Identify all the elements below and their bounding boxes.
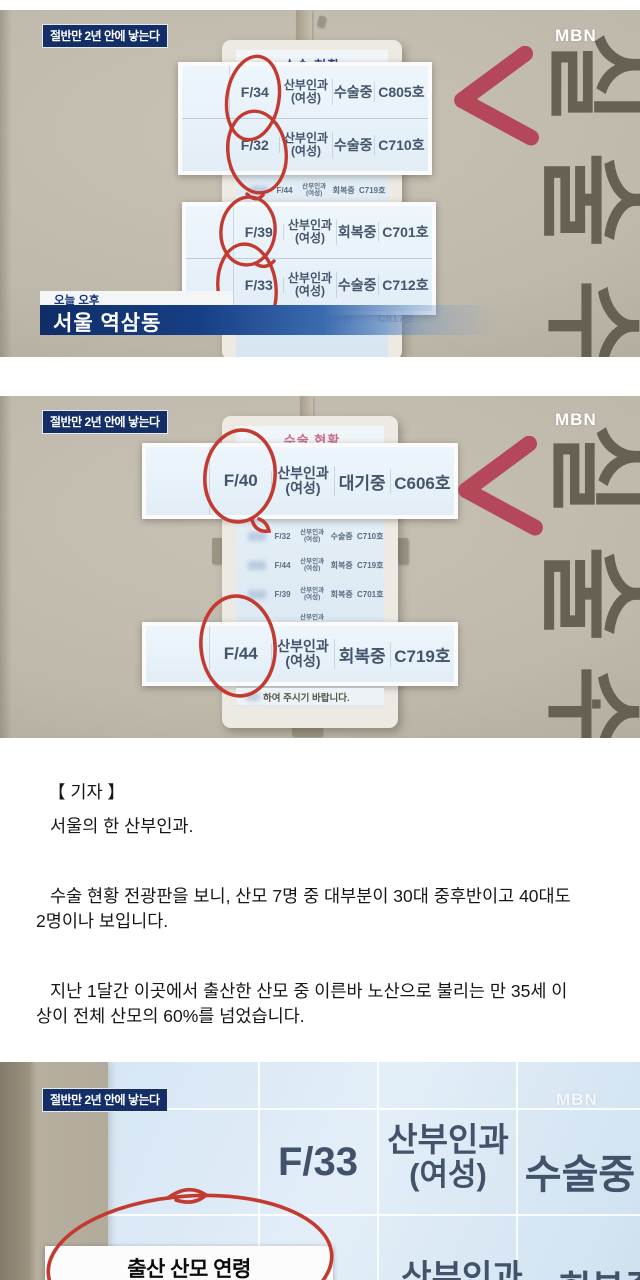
room-cell: C719호: [391, 642, 454, 667]
table-row-small: F/32 산부인과(여성) 수술중 C710호: [248, 524, 386, 548]
age-cell: F/40: [210, 471, 272, 491]
table-row: F/39 산부인과(여성) 회복중 C701호: [186, 206, 432, 258]
status-cell: 회복중: [335, 642, 391, 667]
mount-screw: [317, 15, 326, 27]
department-line1: 산부인과: [295, 529, 329, 536]
monitor-mount-pole: [296, 10, 312, 44]
table-row: F/34 산부인과(여성) 수술중 C805호: [182, 66, 428, 118]
caption-location: 서울 역삼동: [40, 305, 498, 335]
department-line2: (여성): [280, 92, 331, 105]
news-frame-3: F/33 산부인과 (여성) 수술중 산부인과 회복중 출산 산모 연령 (자료…: [0, 1062, 640, 1280]
department-cell: 산부인과 (여성): [382, 1122, 514, 1191]
article-paragraph: 수술 현황 전광판을 보니, 산모 7명 중 대부분이 30대 중후반이고 40…: [36, 884, 582, 935]
department-line2: (여성): [272, 654, 333, 669]
status-cell: 회복중: [337, 222, 379, 242]
department-line2: (여성): [295, 594, 329, 601]
status-cell: 회복중: [329, 589, 355, 600]
department-line1: 산부인과: [297, 183, 331, 190]
department-cell: 산부인과(여성): [284, 219, 336, 245]
blur-redaction: [248, 561, 266, 570]
status-cell: 수술중: [329, 531, 355, 542]
department-cell: 산부인과(여성): [272, 466, 334, 496]
status-cell: 수술중: [337, 275, 379, 295]
department-line2: (여성): [284, 285, 335, 298]
headline-badge: 절반만 2년 안에 낳는다: [42, 1088, 168, 1112]
department-line2: (여성): [297, 190, 331, 197]
department-cell: 산부인과(여성): [297, 183, 331, 197]
table-row-small: F/39 산부인과(여성) 회복중 C701호: [248, 582, 386, 606]
age-cell: F/44: [272, 186, 298, 195]
signage-dot: ·: [588, 674, 608, 734]
department-line2: (여성): [295, 565, 329, 572]
department-line2: (여성): [272, 481, 333, 496]
department-line2: (여성): [295, 536, 329, 543]
redacted-cell: [146, 626, 210, 682]
department-line2: (여성): [284, 232, 335, 245]
blur-redaction: [248, 590, 266, 599]
callout-box-bottom: F/44 산부인과(여성) 회복중 C719호: [142, 622, 458, 686]
department-cell: 산부인과(여성): [295, 529, 329, 543]
department-cell: 산부인과(여성): [280, 79, 332, 105]
blur-redaction: [250, 186, 268, 195]
department-cell: 산부인과: [300, 611, 324, 621]
room-cell: C701호: [379, 222, 432, 242]
signage-char: 술: [536, 546, 640, 642]
table-row: F/32 산부인과(여성) 수술중 C710호: [182, 118, 428, 171]
room-cell: C712호: [379, 275, 432, 295]
callout-box-top: F/40 산부인과(여성) 대기중 C606호: [142, 443, 458, 519]
age-cell: F/32: [270, 532, 296, 541]
age-cell: F/32: [230, 137, 280, 153]
status-cell: 회복중: [331, 185, 357, 196]
department-cell: 산부인과(여성): [295, 558, 329, 572]
caption-time: 오늘 오후: [40, 291, 233, 306]
redacted-cell: [182, 119, 230, 171]
redacted-cell: [182, 66, 230, 118]
article-paragraph: 서울의 한 산부인과.: [36, 814, 582, 839]
signage-char: 술: [536, 152, 640, 248]
redacted-cell: [146, 447, 210, 515]
department-line2: (여성): [280, 145, 331, 158]
mbn-logo: MBN: [556, 1090, 598, 1110]
age-cell: F/44: [270, 561, 296, 570]
room-cell: C719호: [356, 185, 388, 196]
news-frame-1: 수술 현황 F/44 산부인과(여성) 회복중 C719호 수술중 C817호 …: [0, 10, 640, 357]
department-cell: 산부인과(여성): [280, 132, 332, 158]
signage-char: 실: [544, 32, 640, 124]
status-cell-partial: 회복중: [548, 1260, 640, 1280]
age-cell: F/44: [210, 644, 272, 664]
post-page: 수술 현황 F/44 산부인과(여성) 회복중 C719호 수술중 C817호 …: [0, 0, 640, 1280]
wall-corner-shade: [0, 10, 12, 357]
headline-badge: 절반만 2년 안에 낳는다: [42, 24, 168, 48]
callout-box-top: F/34 산부인과(여성) 수술중 C805호 F/32 산부인과(여성) 수술…: [178, 62, 432, 175]
table-row-partial: 산부인과: [300, 610, 340, 622]
red-chevron-icon: [448, 46, 540, 148]
signage-char: 실: [546, 424, 640, 516]
room-cell: C710호: [354, 531, 386, 542]
room-cell: C719호: [354, 560, 386, 571]
room-cell: C805호: [375, 82, 428, 102]
department-line1: 산부인과: [272, 639, 333, 654]
red-chevron-icon: [452, 436, 544, 538]
blur-redaction: [248, 532, 266, 541]
age-cell: F/39: [234, 224, 284, 240]
department-line2: (여성): [382, 1158, 514, 1191]
article-body: 【 기자 】 서울의 한 산부인과. 수술 현황 전광판을 보니, 산모 7명 …: [0, 738, 640, 1062]
article-paragraph: 지난 1달간 이곳에서 출산한 산모 중 이른바 노산으로 불리는 만 35세 …: [36, 979, 582, 1030]
footer-note: 하여 주시기 바랍니다.: [236, 688, 384, 705]
grid-line: [108, 1214, 640, 1216]
department-line1: 산부인과: [295, 558, 329, 565]
table-row: F/44 산부인과(여성) 회복중 C719호: [146, 626, 454, 682]
signage-char: 수: [542, 280, 640, 357]
table-row-small: F/44 산부인과(여성) 회복중 C719호: [250, 178, 388, 202]
department-line1: 산부인과: [382, 1122, 514, 1158]
blur-redaction: [246, 693, 260, 701]
redacted-cell: [186, 206, 234, 258]
footer-note-text: 하여 주시기 바랍니다.: [263, 690, 350, 704]
age-cell: F/33: [262, 1140, 374, 1185]
department-cell: 산부인과(여성): [272, 639, 334, 669]
age-cell: F/39: [270, 590, 296, 599]
department-cell: 산부인과(여성): [284, 272, 336, 298]
room-cell: C710호: [375, 135, 428, 155]
age-cell: F/34: [230, 84, 280, 100]
room-cell: C701호: [354, 589, 386, 600]
department-cell: 산부인과(여성): [295, 587, 329, 601]
wall-corner-shade: [0, 396, 12, 738]
status-cell: 회복중: [329, 560, 355, 571]
info-box-title: 출산 산모 연령: [45, 1253, 333, 1280]
news-frame-2: 수술 현황 F/32 산부인과(여성) 수술중 C710호 F/44 산부인과(…: [0, 396, 640, 738]
headline-badge: 절반만 2년 안에 낳는다: [42, 410, 168, 434]
status-cell: 수술중: [518, 1142, 640, 1200]
grid-line: [377, 1062, 379, 1280]
department-cell-partial: 산부인과: [392, 1250, 532, 1280]
table-row: F/40 산부인과(여성) 대기중 C606호: [146, 447, 454, 515]
department-line1: 산부인과: [295, 587, 329, 594]
table-row-small: F/44 산부인과(여성) 회복중 C719호: [248, 553, 386, 577]
age-cell: F/33: [234, 277, 284, 293]
status-cell: 수술중: [333, 135, 375, 155]
info-box: 출산 산모 연령 (자료 : 강남차병원 산부인과 기간 : 7월 22일~8월…: [45, 1246, 333, 1280]
department-line1: 산부인과: [272, 466, 333, 481]
reporter-label: 【 기자 】: [48, 780, 582, 805]
status-cell: 대기중: [335, 469, 391, 494]
room-cell: C606호: [391, 469, 454, 494]
status-cell: 수술중: [333, 82, 375, 102]
